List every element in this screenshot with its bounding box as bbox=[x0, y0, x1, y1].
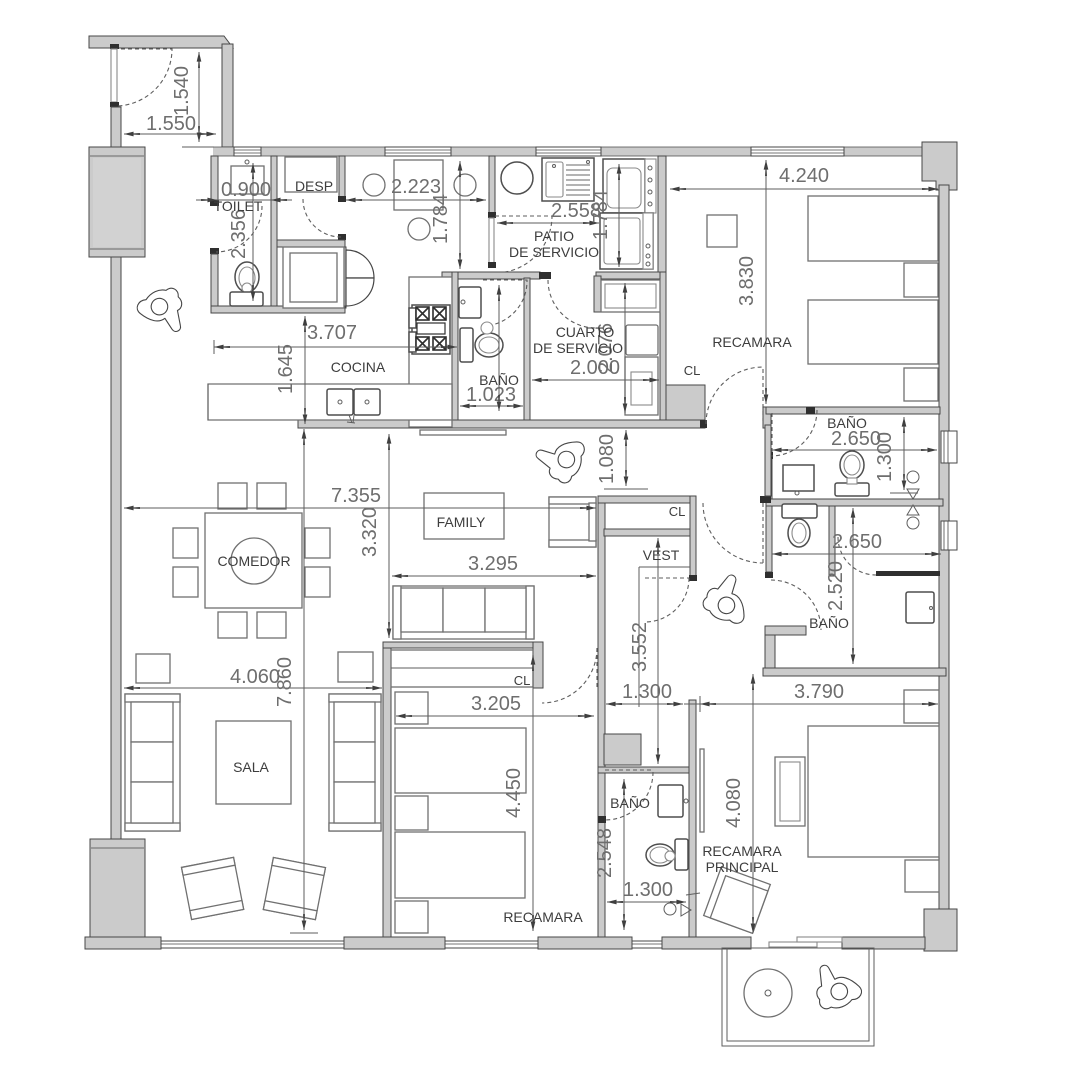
svg-text:3.205: 3.205 bbox=[471, 693, 521, 715]
svg-text:CL: CL bbox=[684, 363, 701, 378]
svg-text:CUARTO: CUARTO bbox=[556, 324, 615, 340]
svg-text:3.707: 3.707 bbox=[307, 322, 357, 344]
svg-text:DE SERVICIO: DE SERVICIO bbox=[533, 340, 623, 356]
svg-text:1.300: 1.300 bbox=[623, 879, 673, 901]
svg-text:3.295: 3.295 bbox=[468, 553, 518, 575]
svg-text:BAÑO: BAÑO bbox=[809, 615, 849, 631]
svg-text:BAÑO: BAÑO bbox=[827, 415, 867, 431]
svg-text:BAÑO: BAÑO bbox=[479, 372, 519, 388]
svg-text:COMEDOR: COMEDOR bbox=[217, 553, 290, 569]
svg-text:7.355: 7.355 bbox=[331, 485, 381, 507]
svg-text:BAÑO: BAÑO bbox=[610, 795, 650, 811]
svg-text:3.790: 3.790 bbox=[794, 681, 844, 703]
svg-text:4.240: 4.240 bbox=[779, 165, 829, 187]
svg-text:1.784: 1.784 bbox=[590, 190, 612, 240]
svg-text:1.300: 1.300 bbox=[874, 432, 896, 482]
svg-text:4.060: 4.060 bbox=[230, 666, 280, 688]
svg-text:PATIO: PATIO bbox=[534, 228, 574, 244]
svg-text:2.356: 2.356 bbox=[228, 209, 250, 259]
svg-text:3.320: 3.320 bbox=[359, 507, 381, 557]
svg-text:FAMILY: FAMILY bbox=[437, 514, 486, 530]
svg-text:4.080: 4.080 bbox=[723, 778, 745, 828]
svg-text:1.645: 1.645 bbox=[275, 344, 297, 394]
svg-text:2.650: 2.650 bbox=[832, 531, 882, 553]
svg-text:3.552: 3.552 bbox=[629, 622, 651, 672]
svg-text:1.784: 1.784 bbox=[430, 194, 452, 244]
svg-text:SALA: SALA bbox=[233, 759, 269, 775]
svg-text:RECAMARA: RECAMARA bbox=[503, 909, 583, 925]
svg-text:RECAMARA: RECAMARA bbox=[702, 843, 782, 859]
svg-text:1.300: 1.300 bbox=[622, 681, 672, 703]
svg-text:COCINA: COCINA bbox=[331, 359, 386, 375]
svg-text:CL: CL bbox=[514, 673, 531, 688]
svg-text:CL: CL bbox=[669, 504, 686, 519]
svg-text:TOILET: TOILET bbox=[214, 198, 263, 214]
svg-text:2.520: 2.520 bbox=[825, 561, 847, 611]
svg-text:1.080: 1.080 bbox=[596, 434, 618, 484]
svg-text:7.860: 7.860 bbox=[274, 657, 296, 707]
svg-text:1.540: 1.540 bbox=[171, 66, 193, 116]
svg-text:RECAMARA: RECAMARA bbox=[712, 334, 792, 350]
svg-text:3.830: 3.830 bbox=[736, 256, 758, 306]
svg-text:2.548: 2.548 bbox=[594, 828, 616, 878]
svg-text:VEST: VEST bbox=[643, 547, 680, 563]
svg-text:PRINCIPAL: PRINCIPAL bbox=[706, 859, 779, 875]
svg-text:4.450: 4.450 bbox=[503, 768, 525, 818]
svg-text:DE SERVICIO: DE SERVICIO bbox=[509, 244, 599, 260]
svg-text:DESP: DESP bbox=[295, 178, 333, 194]
